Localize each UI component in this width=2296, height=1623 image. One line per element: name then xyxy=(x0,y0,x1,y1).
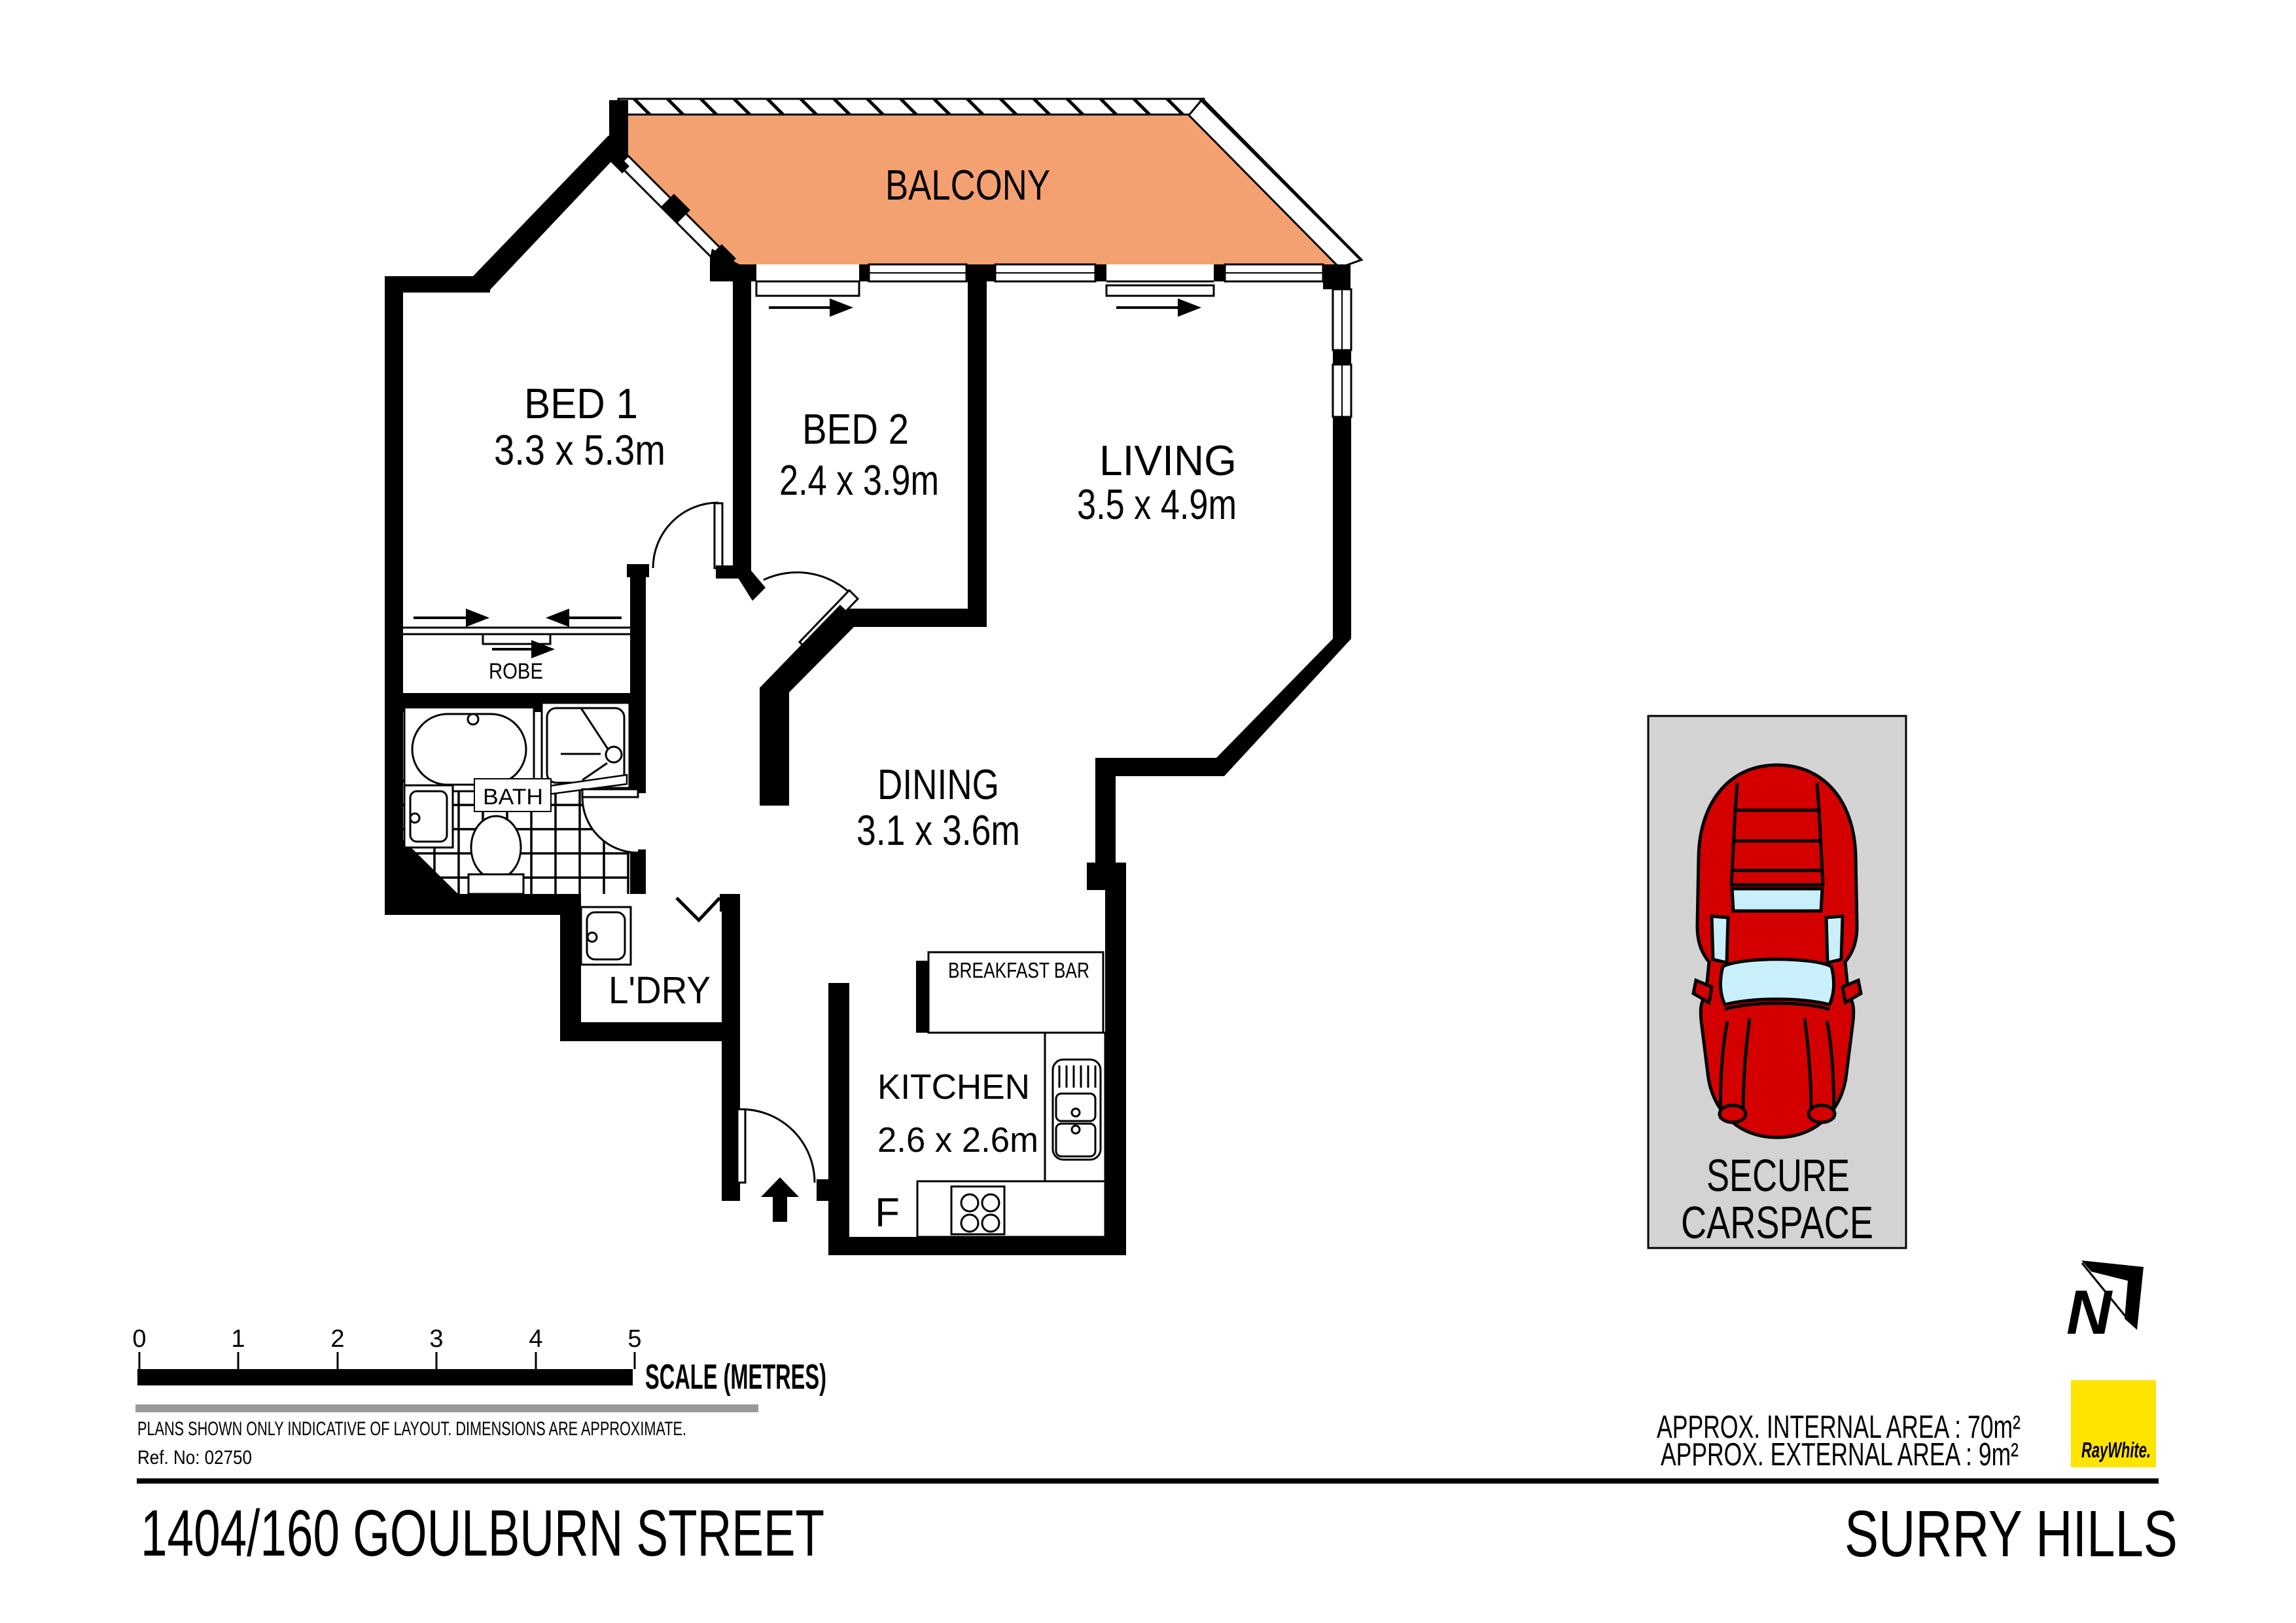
svg-text:0: 0 xyxy=(132,1325,146,1353)
svg-text:ROBE: ROBE xyxy=(489,659,543,684)
svg-text:3.1 x 3.6m: 3.1 x 3.6m xyxy=(857,806,1020,854)
svg-text:SECURE: SECURE xyxy=(1706,1150,1850,1201)
svg-text:DINING: DINING xyxy=(877,760,999,808)
svg-text:BALCONY: BALCONY xyxy=(885,161,1050,209)
svg-text:APPROX. EXTERNAL AREA : 9m²: APPROX. EXTERNAL AREA : 9m² xyxy=(1661,1437,2019,1472)
svg-text:L'DRY: L'DRY xyxy=(609,969,711,1012)
svg-text:CARSPACE: CARSPACE xyxy=(1681,1197,1873,1248)
svg-text:BATH: BATH xyxy=(483,785,543,810)
svg-text:4: 4 xyxy=(529,1325,542,1353)
svg-text:RayWhite.: RayWhite. xyxy=(2081,1438,2151,1462)
svg-text:1: 1 xyxy=(231,1325,245,1353)
svg-text:Ref. No: 02750: Ref. No: 02750 xyxy=(137,1447,252,1469)
svg-text:2: 2 xyxy=(330,1325,344,1353)
svg-text:SCALE (METRES): SCALE (METRES) xyxy=(645,1357,826,1397)
svg-text:BED 1: BED 1 xyxy=(524,380,638,427)
svg-text:3.5 x 4.9m: 3.5 x 4.9m xyxy=(1077,480,1237,528)
svg-text:3: 3 xyxy=(429,1325,443,1353)
svg-text:LIVING: LIVING xyxy=(1099,437,1237,484)
svg-text:2.6 x 2.6m: 2.6 x 2.6m xyxy=(877,1120,1038,1160)
svg-text:N: N xyxy=(2066,1277,2113,1347)
svg-text:1404/160 GOULBURN STREET: 1404/160 GOULBURN STREET xyxy=(141,1497,824,1570)
svg-text:BREAKFAST BAR: BREAKFAST BAR xyxy=(948,958,1089,982)
svg-text:5: 5 xyxy=(627,1325,641,1353)
svg-text:KITCHEN: KITCHEN xyxy=(877,1067,1030,1107)
svg-text:F: F xyxy=(875,1190,900,1236)
svg-text:3.3 x 5.3m: 3.3 x 5.3m xyxy=(494,426,665,474)
svg-text:2.4 x 3.9m: 2.4 x 3.9m xyxy=(779,456,939,504)
svg-text:SURRY HILLS: SURRY HILLS xyxy=(1845,1497,2178,1571)
svg-text:PLANS SHOWN ONLY INDICATIVE OF: PLANS SHOWN ONLY INDICATIVE OF LAYOUT. D… xyxy=(137,1418,686,1440)
svg-text:BED 2: BED 2 xyxy=(802,405,909,453)
